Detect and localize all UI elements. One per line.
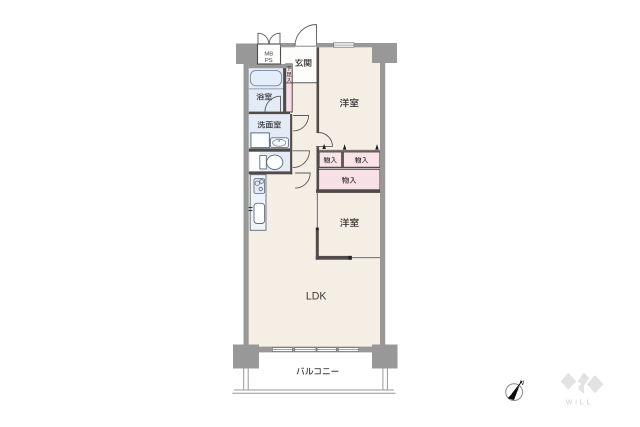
svg-text:MB: MB [264, 52, 273, 58]
svg-text:WILL: WILL [566, 398, 594, 407]
svg-text:LDK: LDK [306, 291, 327, 303]
svg-text:PS: PS [265, 58, 273, 64]
svg-text:N: N [519, 380, 524, 387]
